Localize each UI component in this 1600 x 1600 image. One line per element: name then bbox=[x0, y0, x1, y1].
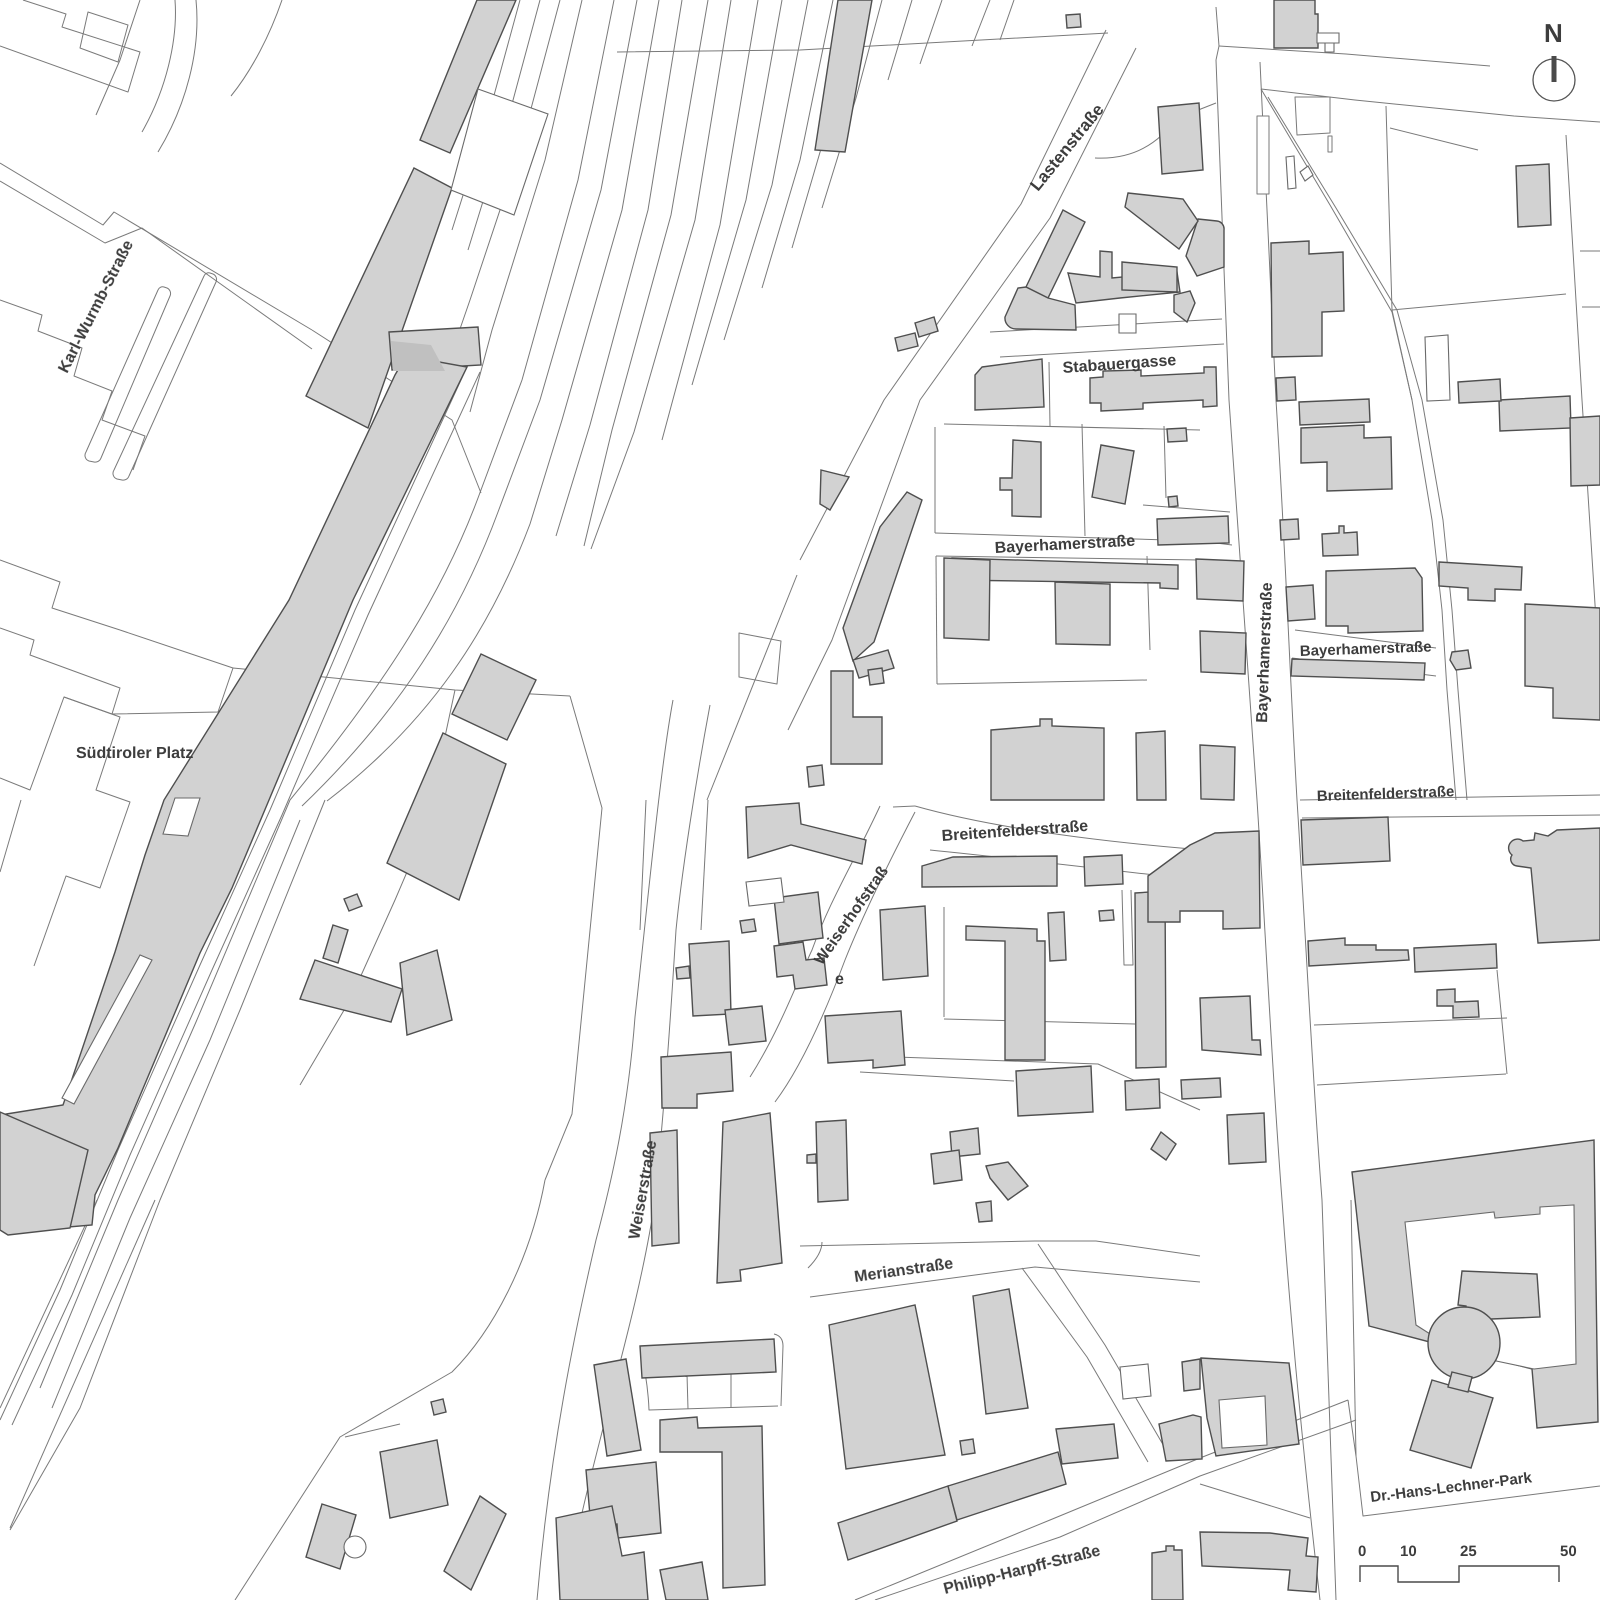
svg-text:50: 50 bbox=[1560, 1543, 1577, 1560]
svg-text:10: 10 bbox=[1400, 1543, 1417, 1560]
svg-text:Südtiroler Platz: Südtiroler Platz bbox=[76, 745, 193, 762]
svg-text:e: e bbox=[835, 971, 844, 988]
svg-text:0: 0 bbox=[1358, 1543, 1366, 1560]
svg-text:25: 25 bbox=[1460, 1543, 1477, 1560]
svg-text:N: N bbox=[1544, 18, 1563, 48]
